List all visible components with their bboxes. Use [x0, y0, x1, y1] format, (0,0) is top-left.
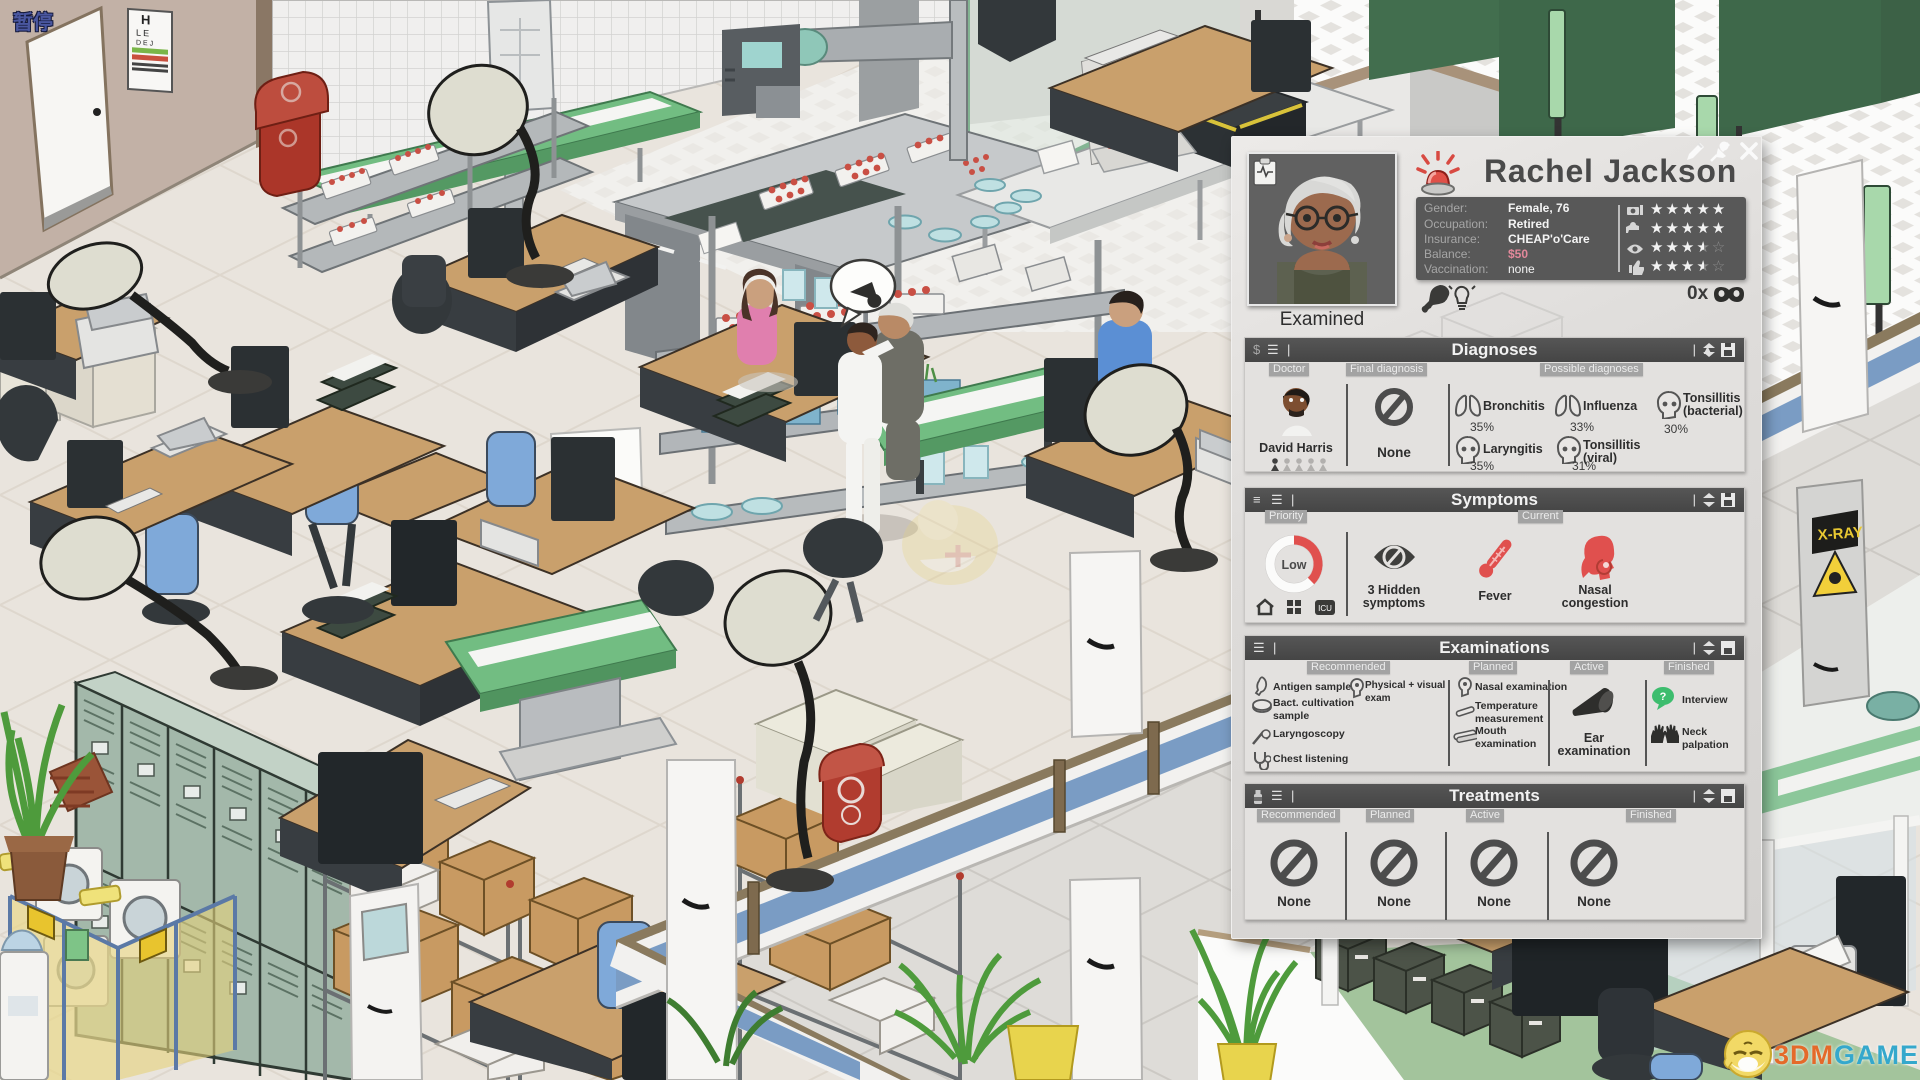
svg-text:X-RAY: X-RAY — [1817, 524, 1863, 544]
svg-text:D E J: D E J — [136, 40, 153, 48]
svg-text:ICU: ICU — [1318, 604, 1332, 613]
svg-text:?: ? — [1660, 691, 1667, 703]
svg-text:Low: Low — [1282, 558, 1307, 572]
svg-text:L E: L E — [136, 28, 149, 39]
svg-text:H: H — [141, 12, 150, 28]
